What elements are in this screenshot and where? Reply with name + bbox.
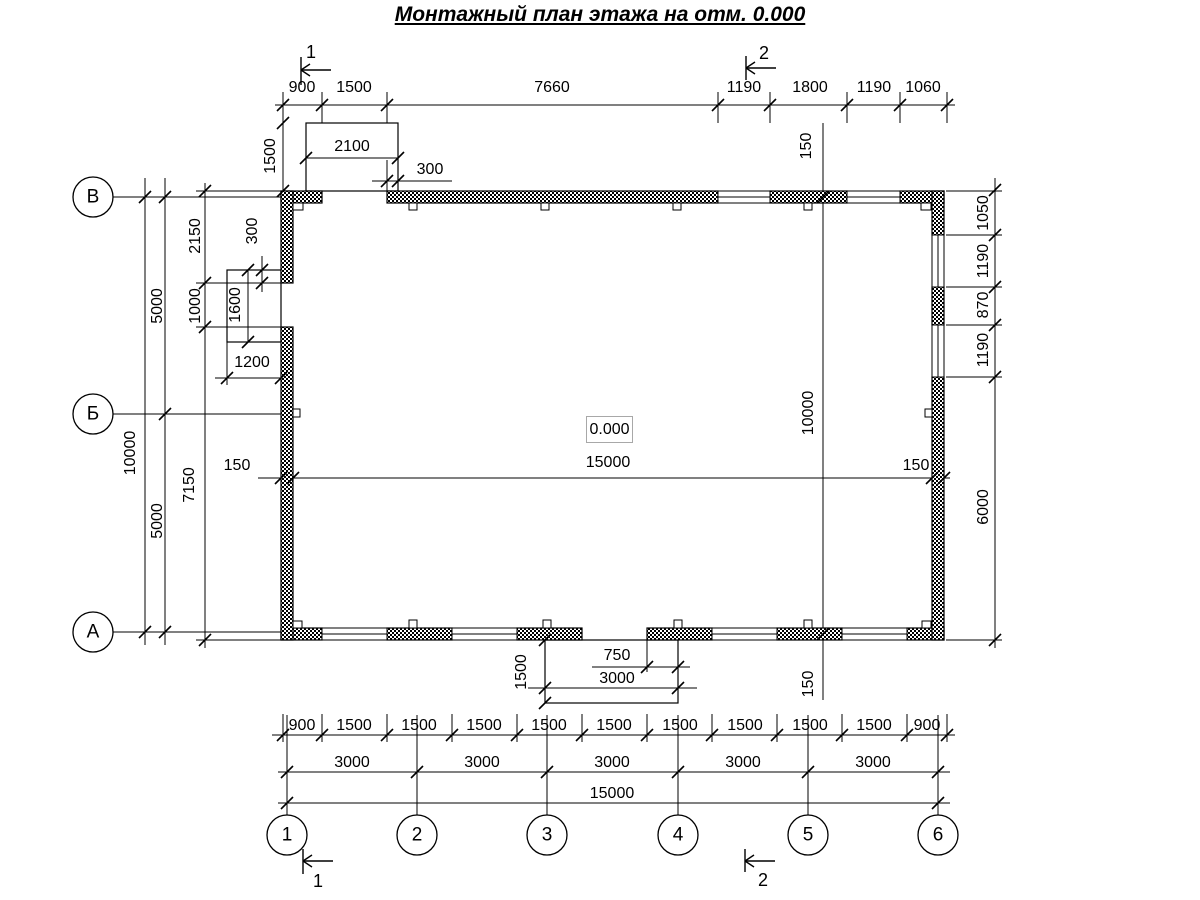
axis-label: 4 <box>673 826 684 845</box>
dimension-label: 3000 <box>725 755 761 771</box>
dimension-label: 1800 <box>792 80 828 96</box>
dimension-label: 1060 <box>905 80 941 96</box>
axis-label: Б <box>87 405 99 424</box>
dimension-label: 3000 <box>599 671 635 687</box>
dimension-label: 1190 <box>976 244 992 278</box>
dimension-label: 1190 <box>727 80 761 96</box>
dimension-label: 900 <box>289 718 316 734</box>
axis-label: 1 <box>282 826 293 845</box>
dimension-label: 1500 <box>662 718 698 734</box>
dimension-label: 1500 <box>514 654 530 690</box>
dimension-label: 7660 <box>534 80 570 96</box>
dimension-label: 5000 <box>150 288 166 324</box>
dimension-label: 10000 <box>801 391 817 436</box>
dimension-label: 7150 <box>182 467 198 503</box>
dimension-label: 1000 <box>188 288 204 324</box>
section-label: 2 <box>759 44 769 62</box>
elevation-box: 0.000 <box>586 416 633 443</box>
dimension-label: 750 <box>604 648 631 664</box>
dimension-label: 1500 <box>792 718 828 734</box>
dimension-label: 1500 <box>531 718 567 734</box>
dimension-label: 150 <box>224 458 251 474</box>
dimension-label: 3000 <box>464 755 500 771</box>
dimension-label: 15000 <box>590 786 635 802</box>
dimension-label: 1050 <box>976 195 992 231</box>
axis-label: В <box>87 188 100 207</box>
axis-label: 5 <box>803 826 814 845</box>
dimension-label: 3000 <box>594 755 630 771</box>
axis-label: 2 <box>412 826 423 845</box>
dimension-label: 300 <box>417 162 444 178</box>
drawing-canvas: Монтажный план этажа на отм. 0.000 90015… <box>0 0 1200 900</box>
dimension-label: 900 <box>914 718 941 734</box>
dimension-label: 1190 <box>857 80 891 96</box>
dimension-label: 1500 <box>336 80 372 96</box>
axis-label: А <box>87 623 100 642</box>
dimension-label: 1500 <box>263 138 279 174</box>
dimension-label: 1500 <box>596 718 632 734</box>
dimension-label: 5000 <box>150 503 166 539</box>
window-openings <box>322 191 944 640</box>
axis-circles <box>73 177 958 855</box>
dimension-label: 10000 <box>123 431 139 476</box>
dimension-label: 1500 <box>727 718 763 734</box>
dimension-label: 870 <box>976 292 992 319</box>
dimension-label: 3000 <box>855 755 891 771</box>
dimension-label: 900 <box>289 80 316 96</box>
axis-label: 6 <box>933 826 944 845</box>
dimension-label: 1500 <box>336 718 372 734</box>
dimension-label: 2150 <box>188 218 204 254</box>
elevation-value: 0.000 <box>589 421 629 439</box>
dimension-label: 1190 <box>976 333 992 367</box>
dimension-label: 1600 <box>228 287 244 323</box>
dimension-label: 1500 <box>401 718 437 734</box>
section-arrows <box>301 56 776 874</box>
dimension-label: 150 <box>801 671 817 698</box>
dimension-label: 2100 <box>334 139 370 155</box>
drawing-title: Монтажный план этажа на отм. 0.000 <box>0 3 1200 27</box>
dimension-label: 300 <box>245 218 261 245</box>
section-label: 1 <box>313 872 323 890</box>
dimension-label: 3000 <box>334 755 370 771</box>
dimension-label: 1500 <box>466 718 502 734</box>
section-label: 1 <box>306 43 316 61</box>
dimension-label: 6000 <box>976 489 992 525</box>
dimension-label: 150 <box>903 458 930 474</box>
axis-label: 3 <box>542 826 553 845</box>
dimension-label: 150 <box>799 133 815 160</box>
section-label: 2 <box>758 871 768 889</box>
dimension-label: 1500 <box>856 718 892 734</box>
dimension-label: 1200 <box>234 355 270 371</box>
dimension-label: 15000 <box>586 455 631 471</box>
